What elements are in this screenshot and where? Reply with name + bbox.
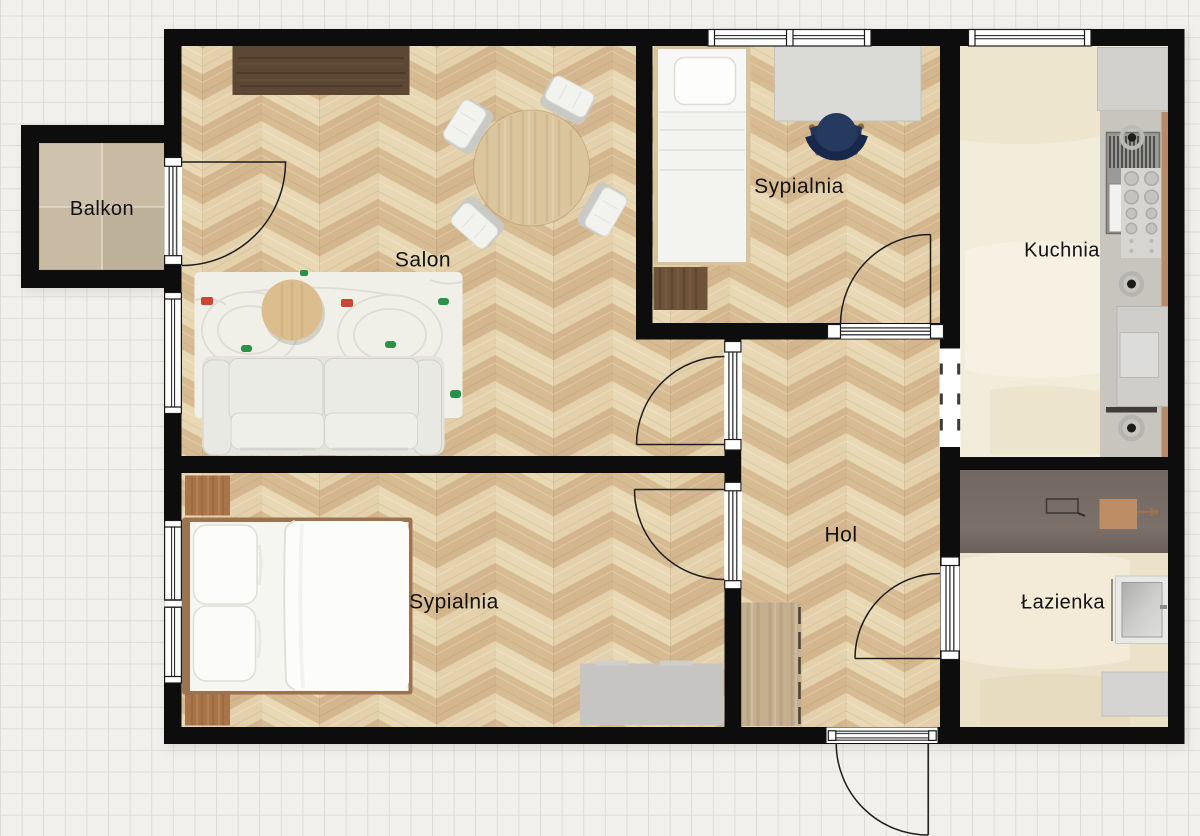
svg-text:Sypialnia: Sypialnia — [754, 175, 844, 198]
svg-text:Balkon: Balkon — [70, 198, 134, 220]
svg-text:Sypialnia: Sypialnia — [409, 591, 499, 614]
svg-text:Kuchnia: Kuchnia — [1024, 240, 1100, 262]
svg-text:Hol: Hol — [824, 524, 857, 547]
svg-text:Łazienka: Łazienka — [1021, 592, 1105, 614]
svg-text:Salon: Salon — [395, 249, 451, 272]
